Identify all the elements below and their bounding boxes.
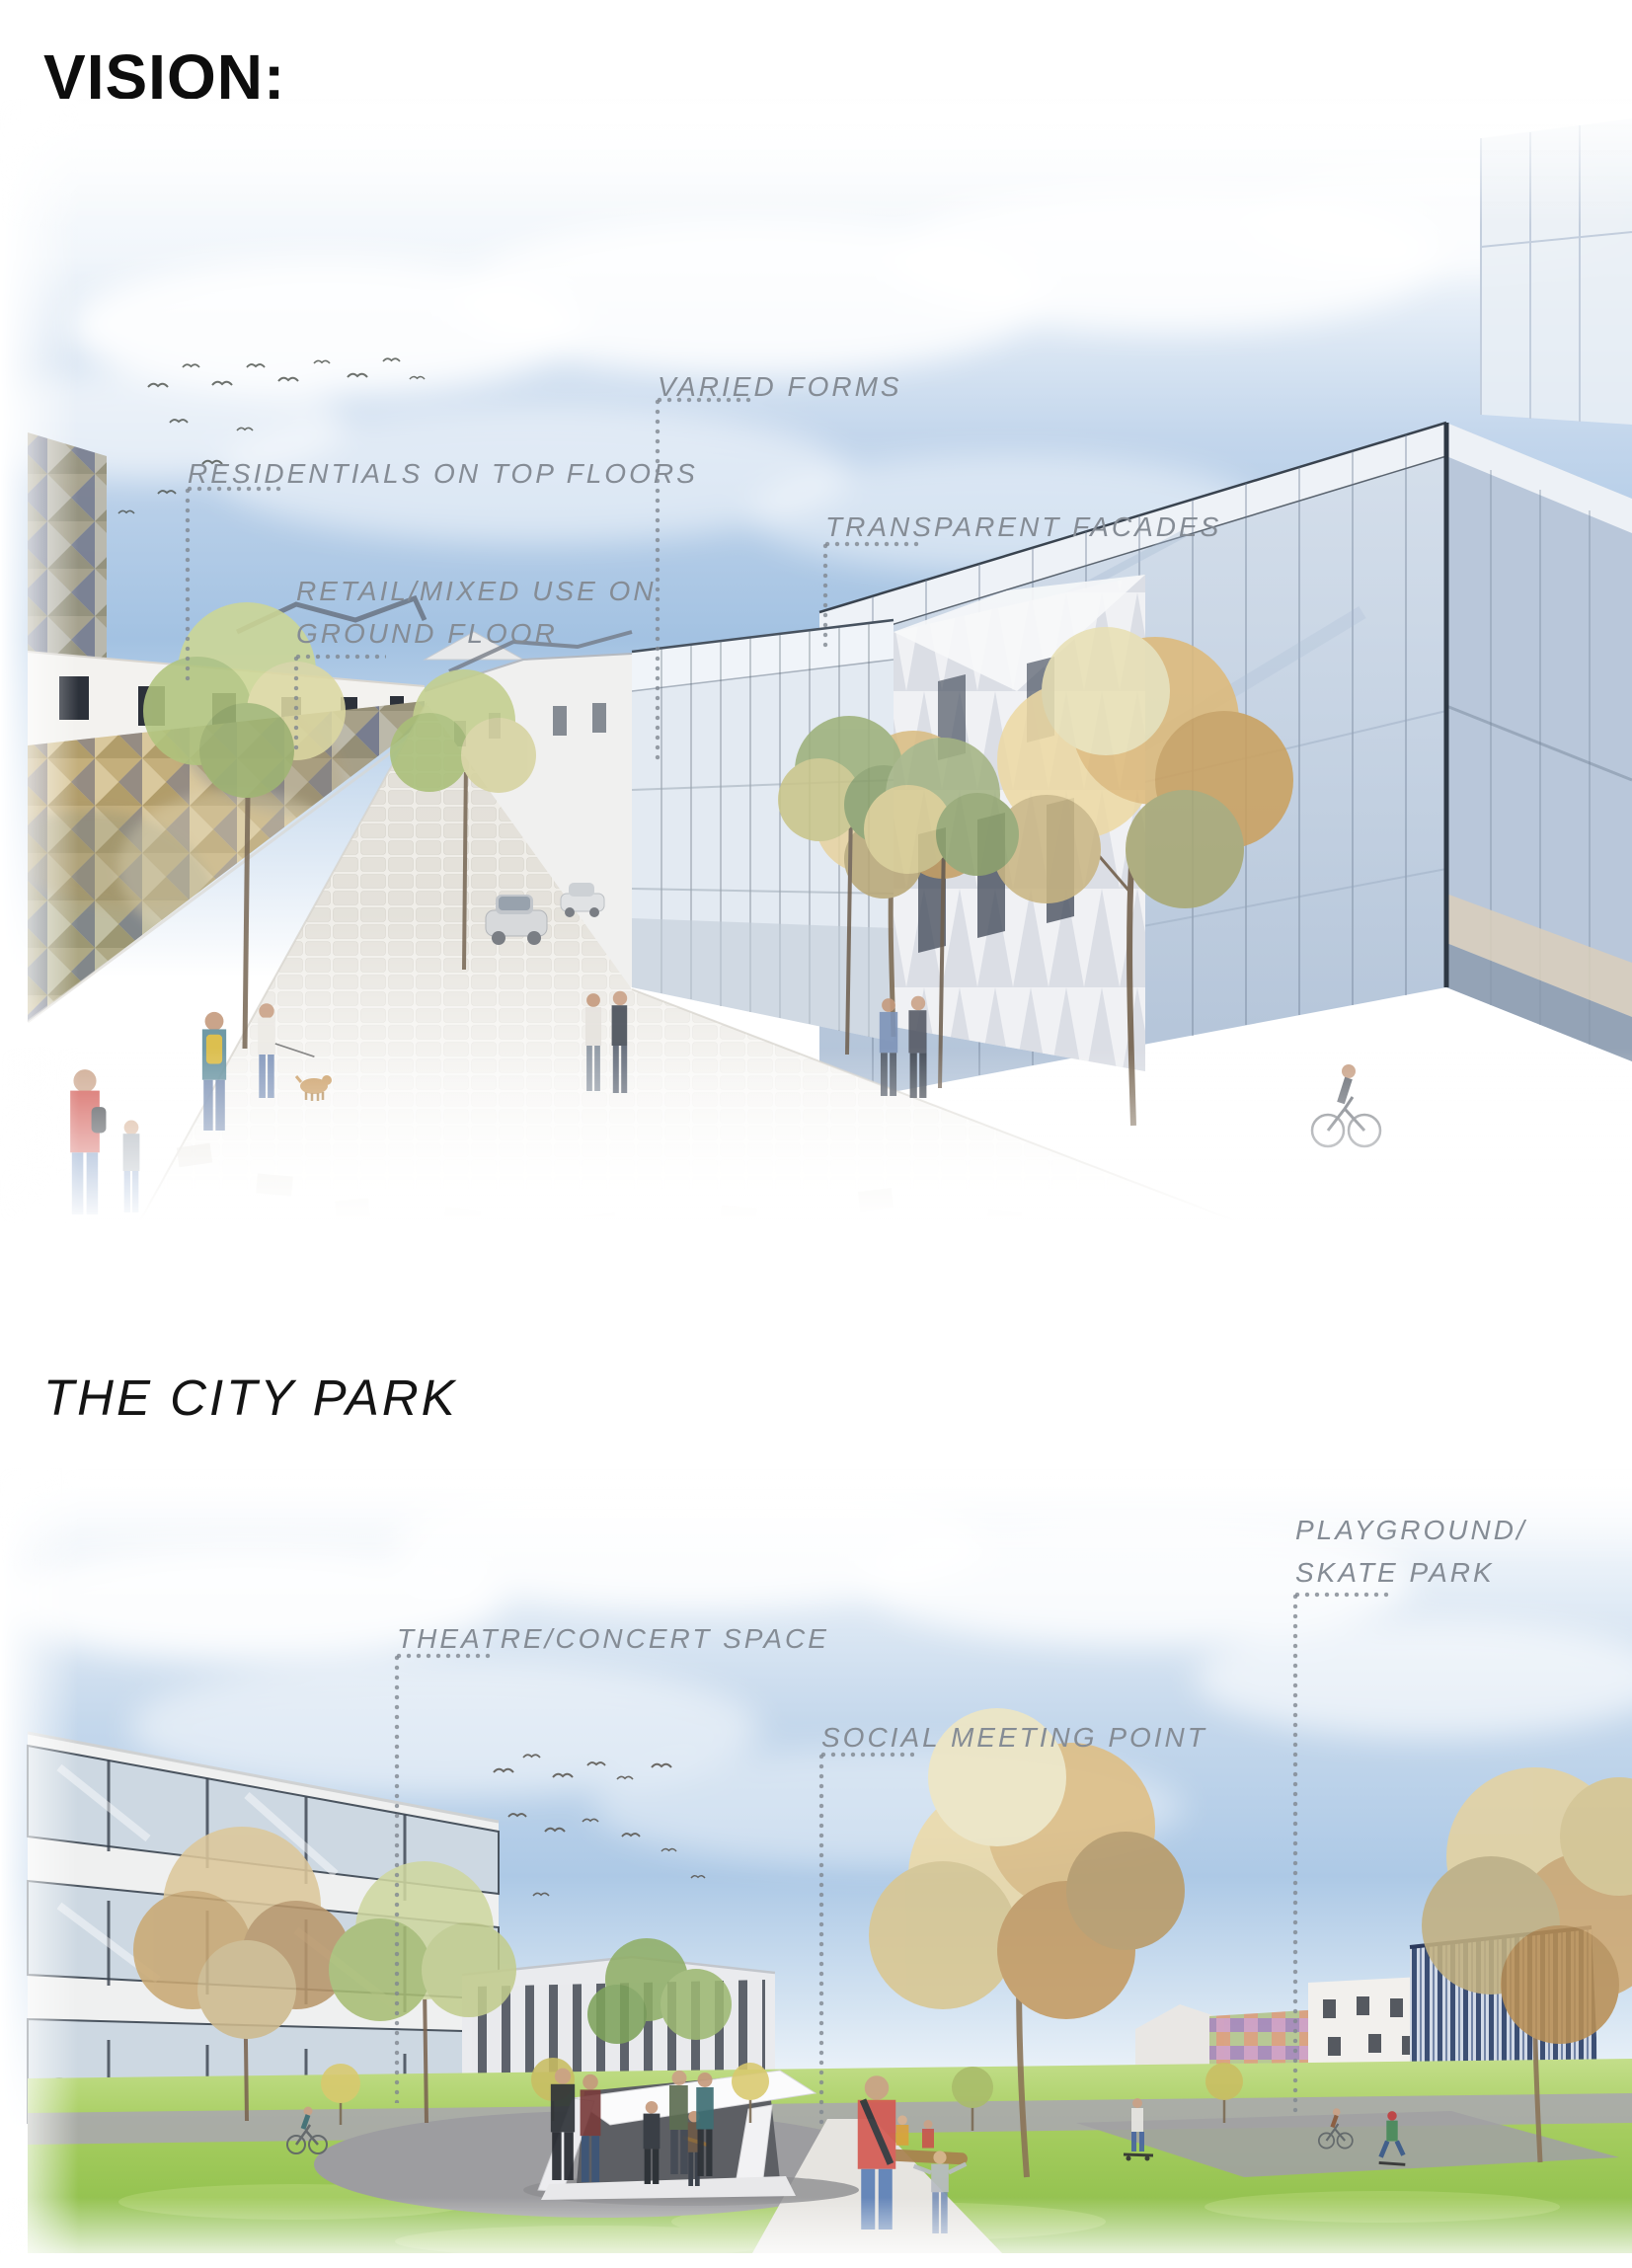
presentation-page: VISION: EXTENDED CITY CENTER THE CITY PA… — [0, 0, 1632, 2268]
leader-retail-horizontal — [293, 654, 386, 660]
annotation-retail-mixed-use: RETAIL/MIXED USE ON GROUND FLOOR — [296, 570, 657, 656]
leader-playground-horizontal — [1292, 1592, 1389, 1598]
section-heading-city-park: THE CITY PARK — [43, 1372, 458, 1423]
leader-transparent-facades-horizontal — [822, 541, 921, 547]
leader-residentials-vertical — [185, 486, 191, 681]
annotation-label: RETAIL/MIXED USE ON — [296, 570, 657, 612]
leader-retail-vertical — [293, 654, 299, 754]
edge-fade-top — [0, 99, 1632, 227]
leader-social-vertical — [818, 1752, 824, 2125]
annotation-label: SKATE PARK — [1295, 1551, 1527, 1594]
leader-residentials-horizontal — [185, 486, 281, 492]
leader-theatre-vertical — [394, 1653, 400, 2103]
annotation-label: PLAYGROUND/ — [1295, 1509, 1527, 1551]
leader-theatre-horizontal — [394, 1653, 491, 1659]
leader-social-horizontal — [818, 1752, 914, 1758]
city-center-rendering — [0, 99, 1632, 1224]
leader-varied-forms-horizontal — [655, 397, 753, 403]
annotation-label: GROUND FLOOR — [296, 612, 657, 655]
child-sitting — [922, 2120, 934, 2149]
leader-transparent-facades-vertical — [822, 541, 828, 652]
annotation-playground-skate-park: PLAYGROUND/ SKATE PARK — [1295, 1509, 1527, 1595]
edge-fade-bottom — [0, 1047, 1632, 1224]
child-sitting — [896, 2115, 909, 2145]
leader-playground-vertical — [1292, 1592, 1298, 2113]
park-edge-fade-bottom — [0, 2197, 1632, 2253]
park-edge-fade-left — [0, 1468, 79, 2253]
